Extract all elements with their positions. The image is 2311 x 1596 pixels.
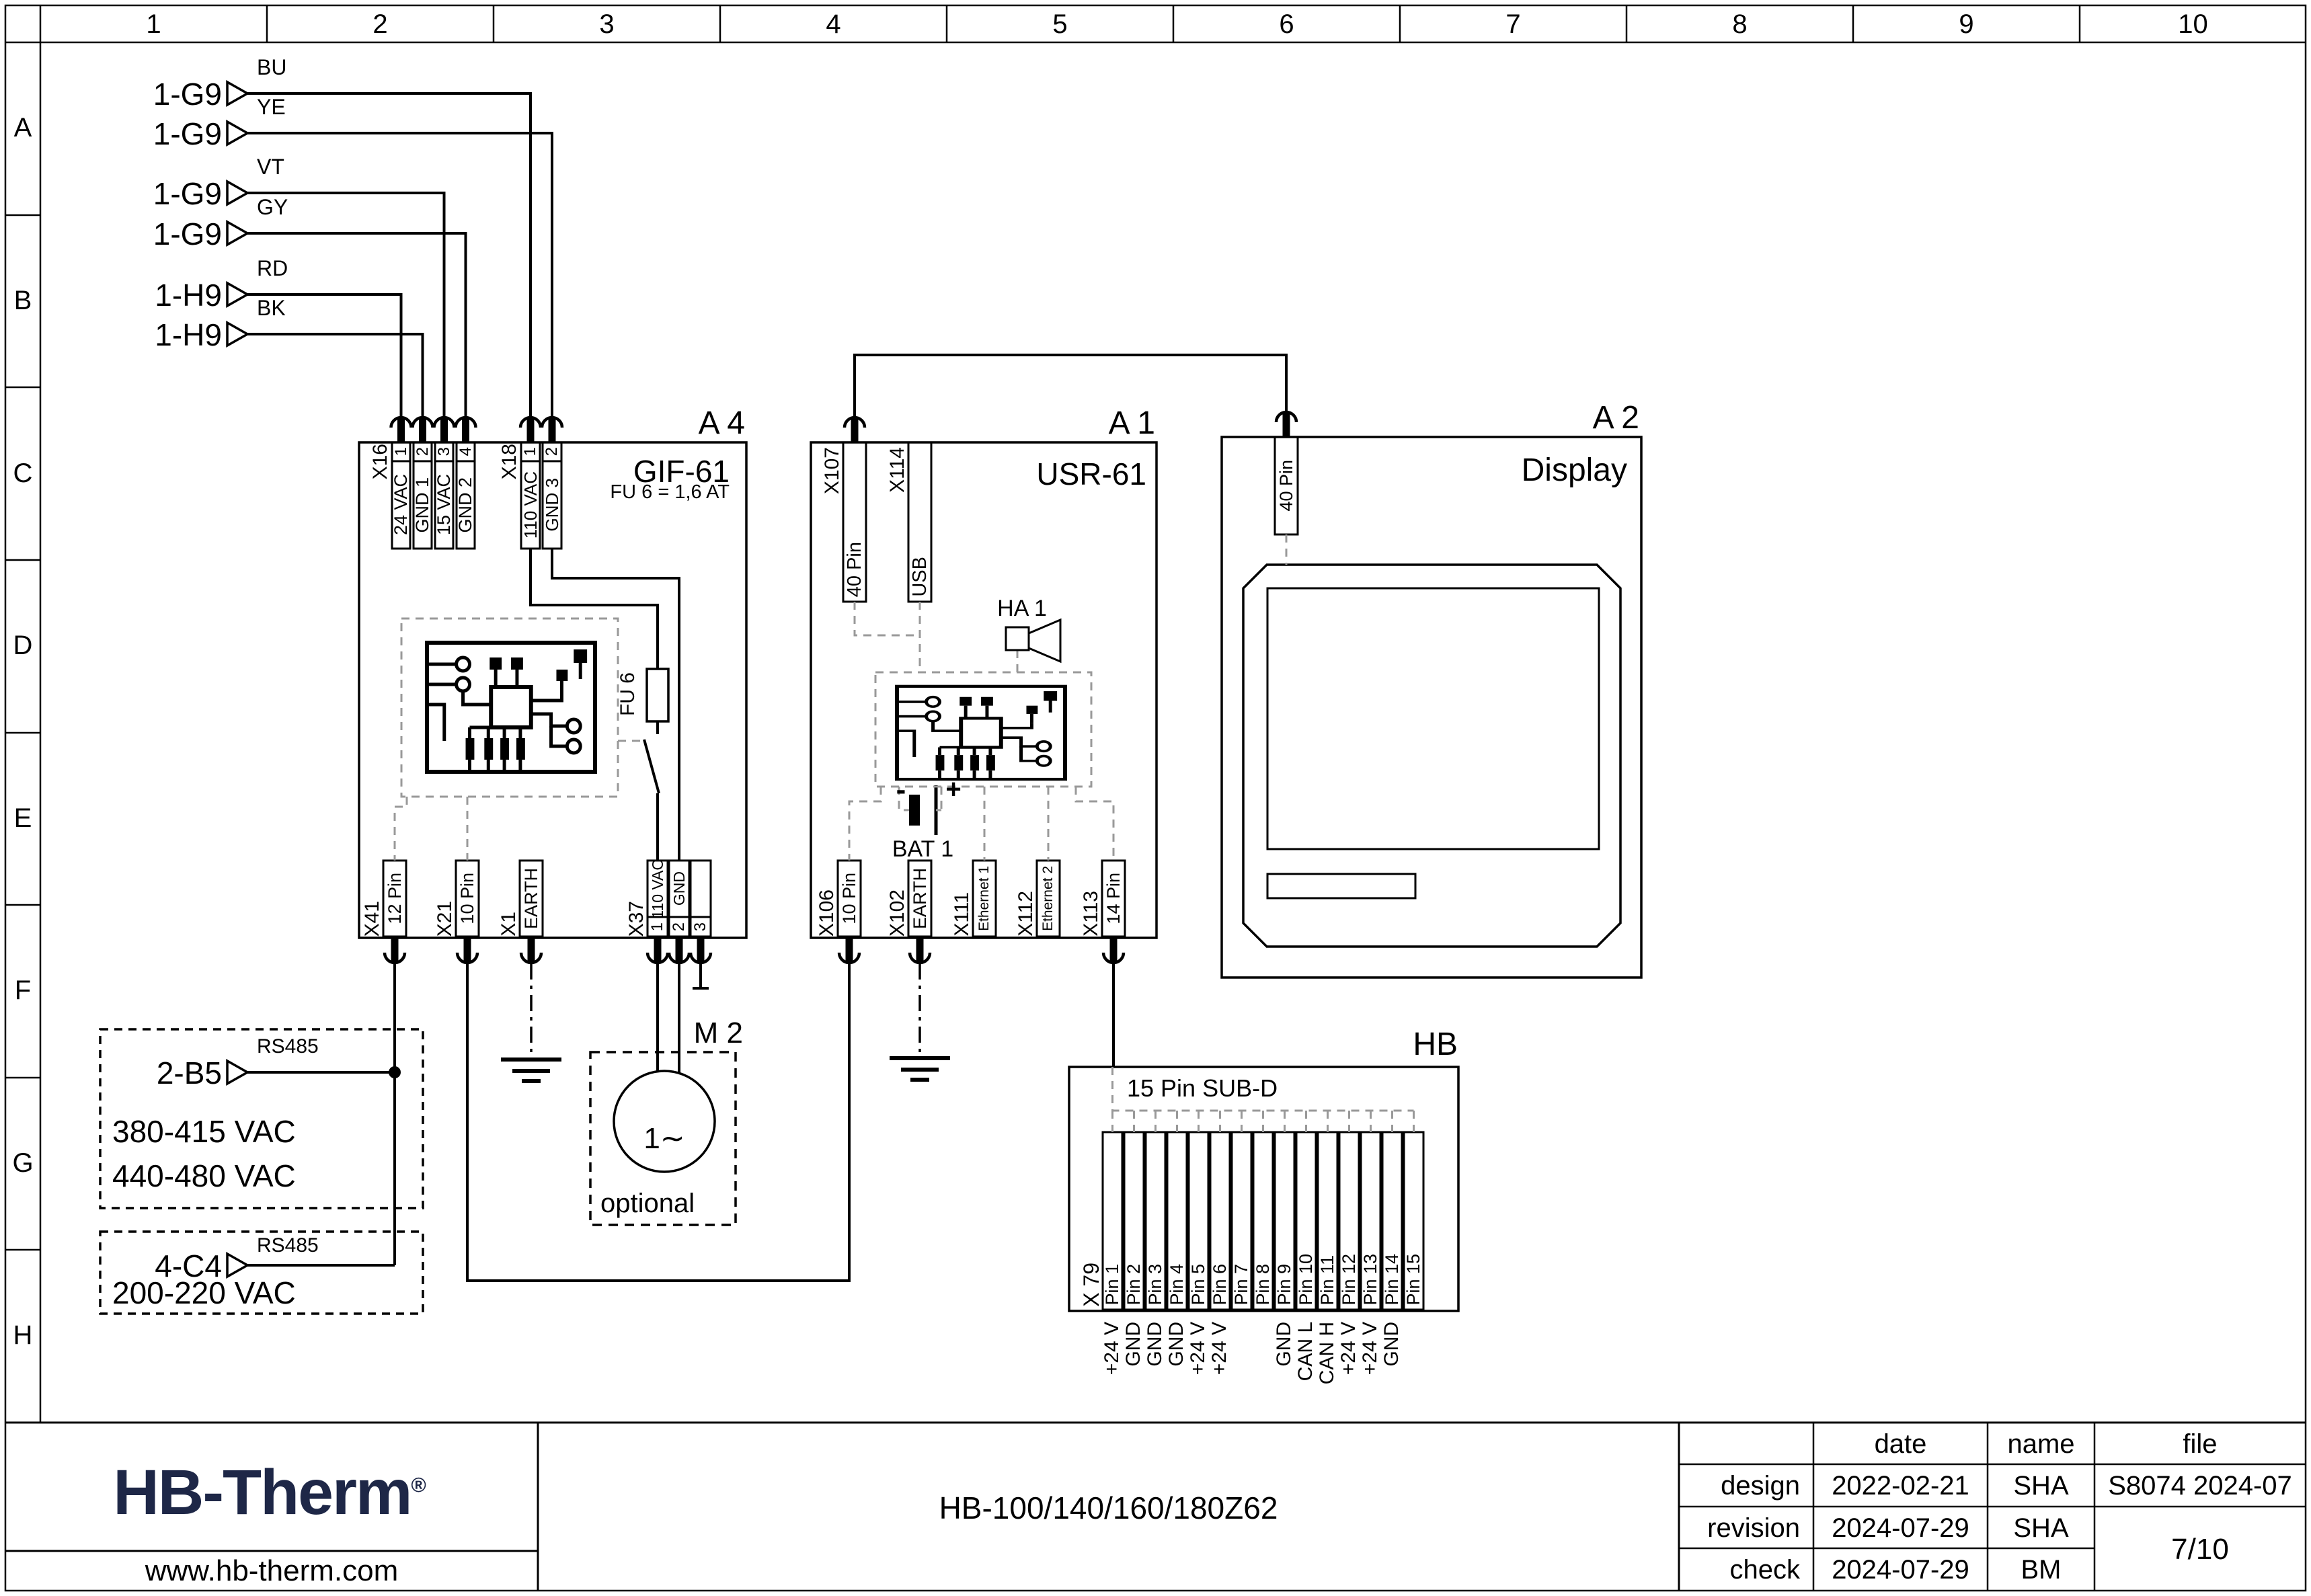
a1-x113-label: X113 — [1082, 861, 1101, 936]
hb-pin-5: Pin 5 — [1189, 1132, 1208, 1306]
a4-x16-pin1-name: 24 VAC — [392, 461, 410, 549]
a4-x37-pin2-num: 2 — [669, 917, 689, 936]
revision-name: SHA — [1988, 1513, 2094, 1544]
company-logo: HB-Therm® — [67, 1456, 471, 1529]
input-ref-6: 1-H9 — [121, 317, 222, 353]
row-label-check: check — [1679, 1555, 1800, 1585]
page-number: 7/10 — [2094, 1533, 2306, 1566]
input-ref-2: 1-G9 — [121, 116, 222, 152]
wire-junction — [389, 1066, 401, 1078]
a4-x16-pin4-num: 4 — [457, 442, 475, 461]
hb-pin-4: Pin 4 — [1167, 1132, 1187, 1306]
wire-code-3: VT — [257, 155, 338, 179]
check-name: BM — [1988, 1555, 2094, 1585]
hb-pin-12: Pin 12 — [1339, 1132, 1359, 1306]
ruler-col-7: 7 — [1400, 9, 1627, 40]
a4-designator: A 4 — [611, 405, 745, 442]
source-voltage-2: 440-480 VAC — [112, 1158, 395, 1194]
registered-mark: ® — [411, 1474, 424, 1497]
a4-x16-label: X16 — [371, 444, 390, 545]
a4-x18-pin1-num: 1 — [521, 442, 540, 461]
source-voltage-3: 200-220 VAC — [112, 1275, 395, 1311]
row-label-design: design — [1679, 1471, 1800, 1501]
a4-x37-pin2-name: GND — [669, 861, 689, 917]
display-screen — [1267, 588, 1599, 849]
a4-x16-pin4-name: GND 2 — [457, 461, 475, 549]
a4-x18-pin2-name: GND 3 — [543, 461, 561, 549]
a4-x37-pin1-name: 110 VAC — [648, 861, 668, 917]
a4-x16-pin3-name: 15 VAC — [435, 461, 453, 549]
a4-x41-name: 12 Pin — [383, 861, 406, 936]
schematic-page: 1 2 3 4 5 6 7 8 9 10 A B C D E F G H 1-G… — [0, 0, 2311, 1596]
a1-x113-name: 14 Pin — [1102, 861, 1125, 936]
hb-connector: 15 Pin SUB-D — [1127, 1074, 1409, 1103]
m2-note: optional — [600, 1189, 748, 1219]
logo-text: HB-Therm — [113, 1457, 411, 1528]
ruler-col-1: 1 — [40, 9, 267, 40]
bat1-label: BAT 1 — [874, 836, 972, 863]
a4-x21-name: 10 Pin — [456, 861, 479, 936]
a1-x114-name: USB — [908, 442, 931, 597]
a1-x106-label: X106 — [818, 861, 836, 936]
a4-x37-pin1-num: 1 — [648, 917, 668, 936]
ruler-col-8: 8 — [1627, 9, 1853, 40]
a1-x111-name: Ethernet 1 — [973, 861, 996, 936]
a4-x16-pin3-num: 3 — [435, 442, 453, 461]
ruler-row-g: G — [5, 1148, 40, 1179]
wire-code-5: RD — [257, 256, 338, 281]
hb-pin-1: Pin 1 — [1103, 1132, 1122, 1306]
fuse-fu6 — [647, 669, 668, 721]
ruler-col-4: 4 — [720, 9, 947, 40]
a4-x16-pin2-name: GND 1 — [414, 461, 432, 549]
a1-x111-label: X111 — [953, 861, 972, 936]
a2-conn-name: 40 Pin — [1275, 437, 1298, 534]
display-bezel — [1243, 565, 1620, 947]
file-value: S8074 2024-07 — [2094, 1471, 2306, 1501]
a4-x18-pin2-num: 2 — [543, 442, 561, 461]
input-ref-3: 1-G9 — [121, 175, 222, 212]
ruler-col-2: 2 — [267, 9, 494, 40]
m2-symbol: 1∼ — [631, 1121, 698, 1156]
wire-code-4: GY — [257, 195, 338, 220]
a4-x16-pin1-num: 1 — [392, 442, 410, 461]
a1-x107-name: 40 Pin — [843, 442, 866, 597]
ruler-row-b: B — [5, 286, 40, 316]
wires — [247, 93, 1286, 1281]
a1-x112-name: Ethernet 2 — [1037, 861, 1060, 936]
hb-pin-7: Pin 7 — [1232, 1132, 1251, 1306]
a1-x114-label: X114 — [888, 447, 907, 568]
drawing-title: HB-100/140/160/180Z62 — [538, 1490, 1679, 1526]
col-header-file: file — [2094, 1429, 2306, 1460]
ruler-row-d: D — [5, 631, 40, 661]
module-links — [395, 534, 1414, 1132]
input-ref-5: 1-H9 — [121, 277, 222, 313]
a4-fuse-note: FU 6 = 1,6 AT — [561, 481, 730, 504]
a4-x37-label: X37 — [627, 861, 646, 936]
m2-designator: M 2 — [642, 1016, 743, 1050]
source-ref-2b5: 2-B5 — [121, 1055, 222, 1091]
ruler-col-9: 9 — [1853, 9, 2080, 40]
a1-designator: A 1 — [1021, 405, 1155, 442]
horn-icon — [1006, 620, 1060, 662]
ruler-col-10: 10 — [2080, 9, 2306, 40]
a2-model: Display — [1459, 452, 1627, 489]
hb-designator: HB — [1323, 1026, 1458, 1063]
a4-x16-pin2-num: 2 — [414, 442, 432, 461]
a1-x106-name: 10 Pin — [838, 861, 861, 936]
wire-code-1: BU — [257, 55, 338, 80]
row-label-revision: revision — [1679, 1513, 1800, 1544]
hb-pin-13: Pin 13 — [1361, 1132, 1380, 1306]
a1-x107-label: X107 — [823, 447, 842, 568]
a4-x1-label: X1 — [500, 861, 518, 936]
hb-pin-6: Pin 6 — [1210, 1132, 1230, 1306]
source-voltage-1: 380-415 VAC — [112, 1113, 395, 1150]
ruler-col-5: 5 — [947, 9, 1173, 40]
check-date: 2024-07-29 — [1813, 1555, 1988, 1585]
hb-pin-10: Pin 10 — [1296, 1132, 1316, 1306]
a4-x21-label: X21 — [436, 861, 455, 936]
a4-x37-pin3-num: 3 — [691, 917, 711, 936]
hb-pin-11: Pin 11 — [1318, 1132, 1337, 1306]
hb-pin-9: Pin 9 — [1275, 1132, 1294, 1306]
ruler-row-a: A — [5, 113, 40, 143]
a4-pcb-icon — [427, 643, 595, 772]
ruler-row-c: C — [5, 458, 40, 489]
a1-pcb-icon — [897, 686, 1065, 779]
ruler-row-e: E — [5, 803, 40, 834]
col-header-name: name — [1988, 1429, 2094, 1460]
hb-pin-8: Pin 8 — [1253, 1132, 1273, 1306]
a2-designator: A 2 — [1505, 399, 1639, 436]
a4-x18-pin1-name: 110 VAC — [521, 461, 540, 549]
a4-fu6-label: FU 6 — [619, 662, 637, 726]
ruler-row-f: F — [5, 975, 40, 1006]
a4-x18-label: X18 — [500, 444, 519, 545]
hb-pin-14: Pin 14 — [1382, 1132, 1402, 1306]
bat1-plus: + — [941, 774, 966, 805]
input-ref-1: 1-G9 — [121, 76, 222, 112]
design-date: 2022-02-21 — [1813, 1471, 1988, 1501]
hb-pin-2: Pin 2 — [1124, 1132, 1144, 1306]
col-header-date: date — [1813, 1429, 1988, 1460]
input-ref-4: 1-G9 — [121, 216, 222, 252]
hb-port-label: X 79 — [1081, 1132, 1101, 1307]
ruler-row-h: H — [5, 1320, 40, 1351]
hb-pin-3: Pin 3 — [1146, 1132, 1165, 1306]
a1-x102-name: EARTH — [908, 861, 931, 936]
battery-bat1 — [909, 785, 936, 835]
a1-x102-label: X102 — [888, 861, 907, 936]
wire-code-6: BK — [257, 296, 338, 321]
a1-model: USR-61 — [978, 456, 1146, 492]
a4-x1-name: EARTH — [520, 861, 543, 936]
design-name: SHA — [1988, 1471, 2094, 1501]
ruler-col-6: 6 — [1173, 9, 1400, 40]
wire-code-2: YE — [257, 95, 338, 120]
hb-signal-pin14: GND — [1378, 1322, 1405, 1423]
bat1-minus: - — [889, 773, 913, 807]
hb-signal-pin6: +24 V — [1206, 1322, 1233, 1423]
display-button-bar — [1267, 874, 1415, 898]
company-website: www.hb-therm.com — [5, 1554, 538, 1588]
a1-x112-label: X112 — [1017, 861, 1035, 936]
a4-x41-label: X41 — [363, 861, 382, 936]
ha1-label: HA 1 — [985, 596, 1059, 622]
source-bus-2b5: RS485 — [257, 1035, 358, 1058]
revision-date: 2024-07-29 — [1813, 1513, 1988, 1544]
source-bus-4c4: RS485 — [257, 1234, 358, 1257]
ruler-col-3: 3 — [494, 9, 720, 40]
hb-pin-15: Pin 15 — [1404, 1132, 1423, 1306]
